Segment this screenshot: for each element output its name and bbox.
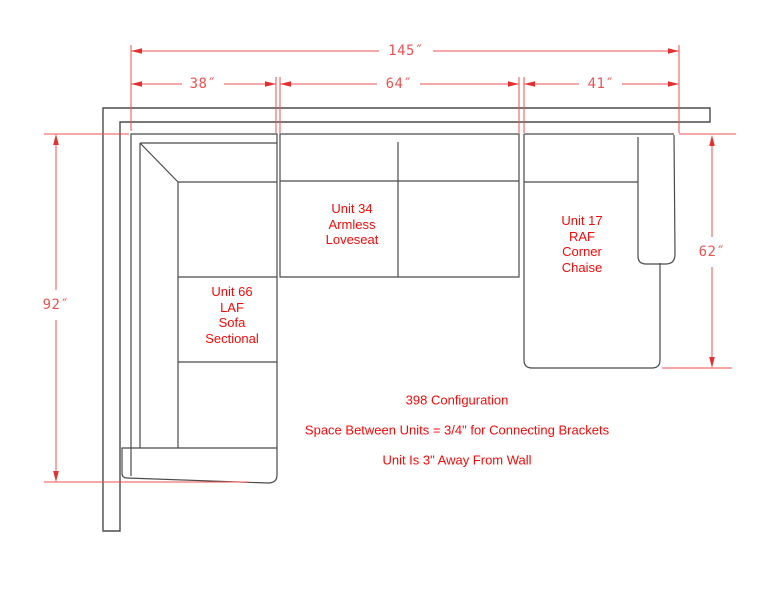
configuration-title: 398 Configuration — [305, 393, 609, 408]
dimension-unit-66-width: 38″ — [190, 77, 217, 91]
unit-34-label: Unit 34 Armless Loveseat — [326, 201, 379, 248]
floor-plan-drawing: 145″ 38″ 64″ 41″ 92″ 62″ Unit 66 LAF Sof… — [0, 0, 766, 592]
wall-clearance-note: Unit Is 3" Away From Wall — [305, 453, 609, 468]
dimension-unit-34-width: 64″ — [386, 77, 413, 91]
spacing-note: Space Between Units = 3/4" for Connectin… — [305, 423, 609, 438]
configuration-notes: 398 Configuration Space Between Units = … — [305, 378, 609, 483]
unit-66-label: Unit 66 LAF Sofa Sectional — [205, 284, 258, 346]
dimension-right-depth: 62″ — [699, 245, 726, 259]
floor-plan-linework — [0, 0, 766, 592]
unit-17-label: Unit 17 RAF Corner Chaise — [561, 213, 602, 275]
unit-34-outline — [280, 134, 519, 277]
dimension-unit-17-width: 41″ — [588, 77, 615, 91]
dimension-left-depth: 92″ — [43, 298, 70, 312]
dimension-total-width: 145″ — [388, 44, 424, 58]
